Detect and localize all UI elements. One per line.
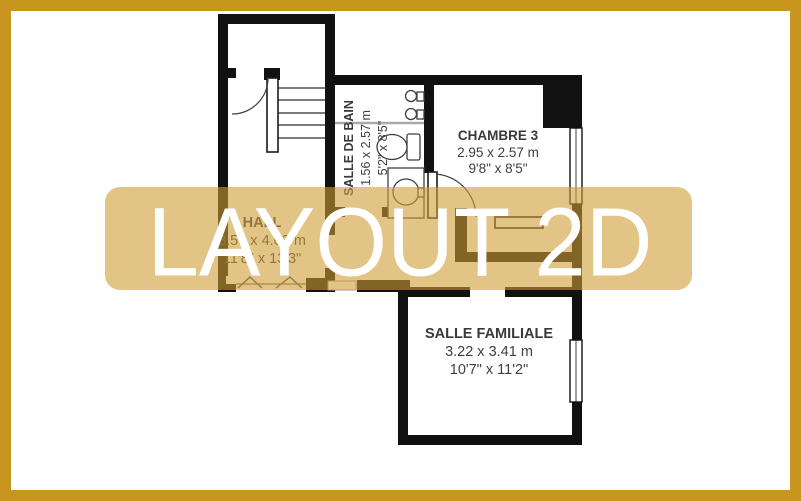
room-label-salle-familiale: SALLE FAMILIALE 3.22 x 3.41 m 10'7" x 11… xyxy=(425,326,553,378)
salle-de-bain-size-imperial: 5'2" x 8'5" xyxy=(376,121,390,176)
chambre3-size-metric: 2.95 x 2.57 m xyxy=(457,145,539,160)
salle-familiale-name: SALLE FAMILIALE xyxy=(425,326,553,342)
salle-de-bain-name: SALLE DE BAIN xyxy=(342,100,356,196)
watermark-banner: LAYOUT 2D xyxy=(105,187,692,297)
salle-familiale-size-metric: 3.22 x 3.41 m xyxy=(445,344,533,360)
toilet-tank-icon xyxy=(407,134,420,160)
stair-rail xyxy=(267,78,278,152)
salle-familiale-size-imperial: 10'7" x 11'2" xyxy=(450,362,528,378)
room-label-salle-de-bain: SALLE DE BAIN 1.56 x 2.57 m 5'2" x 8'5" xyxy=(342,100,390,196)
staircase xyxy=(267,78,325,152)
salle-de-bain-size-metric: 1.56 x 2.57 m xyxy=(359,110,373,186)
stairwell-door-arc xyxy=(232,78,268,114)
watermark-text: LAYOUT 2D xyxy=(148,188,653,297)
room-label-chambre3: CHAMBRE 3 2.95 x 2.57 m 9'8" x 8'5" xyxy=(457,128,539,176)
chambre3-size-imperial: 9'8" x 8'5" xyxy=(468,161,527,176)
sink-icon xyxy=(406,109,417,120)
floorplan-page: CHAMBRE 3 2.95 x 2.57 m 9'8" x 8'5" SALL… xyxy=(0,0,801,501)
floorplan-drawing: CHAMBRE 3 2.95 x 2.57 m 9'8" x 8'5" SALL… xyxy=(0,0,801,501)
sink-faucet-icon xyxy=(417,110,424,119)
chambre3-name: CHAMBRE 3 xyxy=(458,128,539,143)
sink-faucet-icon xyxy=(417,92,424,101)
sink-icon xyxy=(406,91,417,102)
